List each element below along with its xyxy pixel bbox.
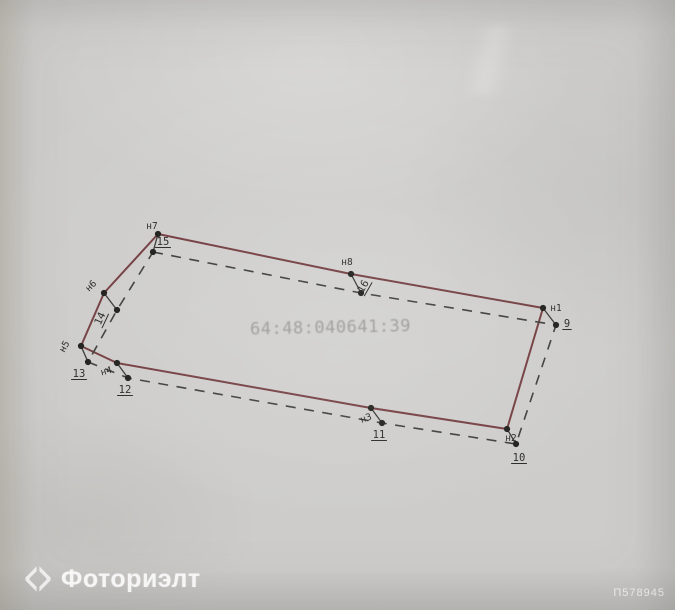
watermark-brand: Фоториэлт	[61, 565, 201, 594]
boundary-point	[114, 360, 120, 366]
photographed-cadastral-document: н7н8н1н2н3н4н5н6151691011121314 64:48:04…	[0, 0, 675, 610]
point-label: н1	[550, 303, 562, 314]
point-label: 11	[373, 429, 386, 441]
point-label: 9	[564, 318, 570, 330]
point-pair-leader	[104, 293, 117, 310]
fotorielt-logo-icon	[24, 560, 52, 598]
boundary-point	[150, 249, 156, 255]
boundary-point	[101, 290, 107, 296]
point-label: н5	[57, 339, 72, 354]
boundary-point	[85, 359, 91, 365]
point-label: н6	[83, 278, 99, 294]
point-label: н8	[341, 257, 353, 268]
boundary-point	[125, 375, 131, 381]
boundary-point	[348, 271, 354, 277]
cadastral-number: 64:48:040641:39	[250, 316, 400, 339]
point-label: 12	[119, 384, 132, 396]
boundary-point	[78, 343, 84, 349]
land-plot-boundary-drawing: н7н8н1н2н3н4н5н6151691011121314	[0, 0, 675, 610]
watermark: Фоториэлт	[24, 558, 201, 600]
boundary-point	[553, 322, 559, 328]
boundary-point	[540, 305, 546, 311]
point-label: 10	[513, 452, 526, 464]
point-label: 13	[73, 368, 86, 380]
boundary-point	[504, 426, 510, 432]
boundary-point	[114, 307, 120, 313]
inner-boundary-dashed-line	[88, 252, 556, 444]
photo-id-code: П578945	[613, 587, 665, 599]
point-label: н7	[146, 221, 157, 232]
boundary-point	[368, 405, 374, 411]
boundary-point	[513, 441, 519, 447]
boundary-point	[379, 420, 385, 426]
point-label: 15	[157, 236, 170, 248]
point-label: н3	[359, 412, 374, 426]
point-label: н4	[99, 365, 113, 379]
